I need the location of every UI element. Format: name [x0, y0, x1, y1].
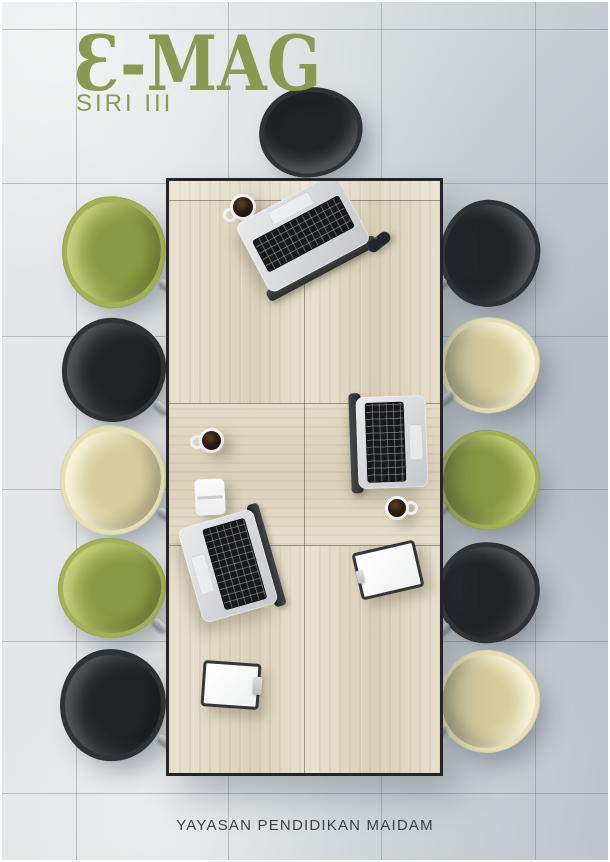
chair-seat: [62, 427, 164, 532]
clipboard-paper: [204, 663, 259, 707]
floor-seam-vertical: [535, 0, 536, 862]
chair-black: [57, 646, 169, 763]
chair-cream: [437, 314, 543, 417]
chair-seat: [439, 652, 538, 751]
chair-black: [433, 538, 544, 648]
laptop: [177, 508, 279, 624]
clipboard-clip: [252, 676, 262, 695]
laptop: [234, 181, 371, 294]
cup-handle: [223, 208, 237, 222]
laptop-body: [355, 395, 428, 489]
magazine-title: Ɛ-MAG: [74, 26, 321, 102]
chair-green: [435, 427, 542, 532]
chair-cream: [56, 421, 169, 538]
cover-photo-meeting-table: [0, 0, 610, 862]
coffee-cup: [385, 496, 409, 520]
cup-handle: [190, 435, 204, 449]
chair-seat: [440, 201, 540, 306]
chair-seat: [63, 652, 164, 758]
table-surface: [169, 181, 440, 773]
chair-seat: [438, 543, 538, 642]
chair-seat: [442, 319, 538, 411]
cup-handle: [404, 501, 418, 515]
chair-seat: [60, 539, 165, 637]
chair-seat: [65, 321, 163, 419]
chair-green: [56, 191, 171, 313]
laptop-trackpad: [408, 423, 423, 460]
laptop-keyboard: [202, 518, 267, 611]
clipboard: [200, 660, 261, 710]
chair-cream: [434, 647, 544, 757]
title-block: Ɛ-MAG SIRI III: [74, 26, 368, 118]
chair-black: [435, 195, 546, 312]
table-center-seam: [304, 200, 305, 773]
chair-seat: [441, 433, 537, 528]
conference-table: [166, 178, 443, 776]
footer-text: YAYASAN PENDIDIKAN MAIDAM: [0, 817, 610, 834]
eyeglasses: [365, 229, 393, 254]
notepad: [194, 478, 226, 516]
chair-seat: [62, 197, 166, 307]
coffee-cup: [199, 428, 224, 453]
magazine-cover-page: Ɛ-MAG SIRI III YAYASAN PENDIDIKAN MAIDAM: [0, 0, 610, 862]
laptop-keyboard: [365, 401, 407, 483]
chair-green: [54, 533, 170, 642]
clipboard: [351, 539, 424, 600]
floor-seam-horizontal: [0, 793, 610, 794]
clipboard-paper: [355, 543, 421, 597]
laptop: [355, 395, 428, 489]
